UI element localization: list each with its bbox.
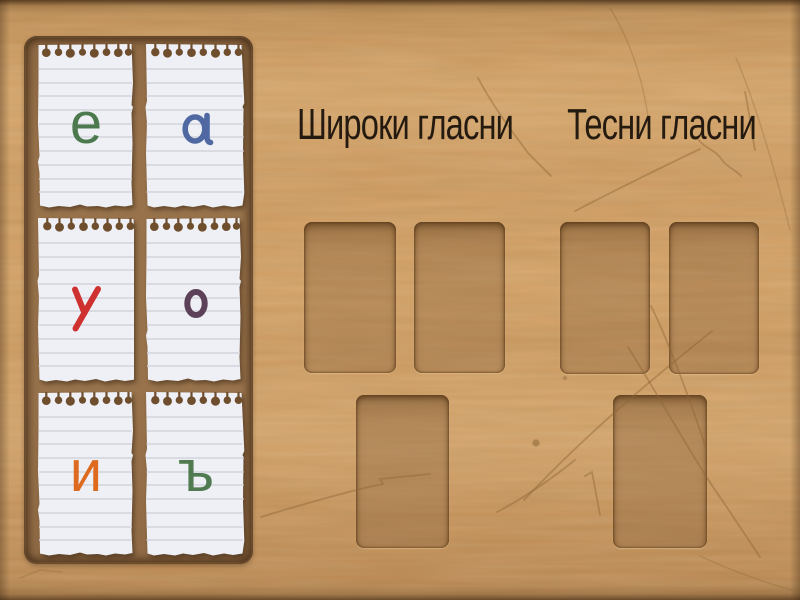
svg-text:и: и xyxy=(70,439,102,504)
svg-text:е: е xyxy=(70,91,102,156)
svg-text:ъ: ъ xyxy=(178,439,214,504)
